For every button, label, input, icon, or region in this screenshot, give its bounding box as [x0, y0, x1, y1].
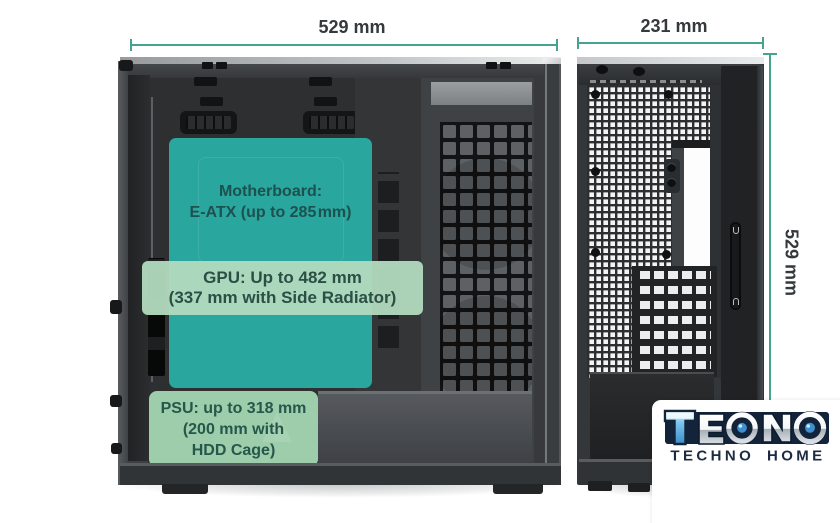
svg-text:TECHNO HOME: TECHNO HOME — [670, 448, 825, 465]
